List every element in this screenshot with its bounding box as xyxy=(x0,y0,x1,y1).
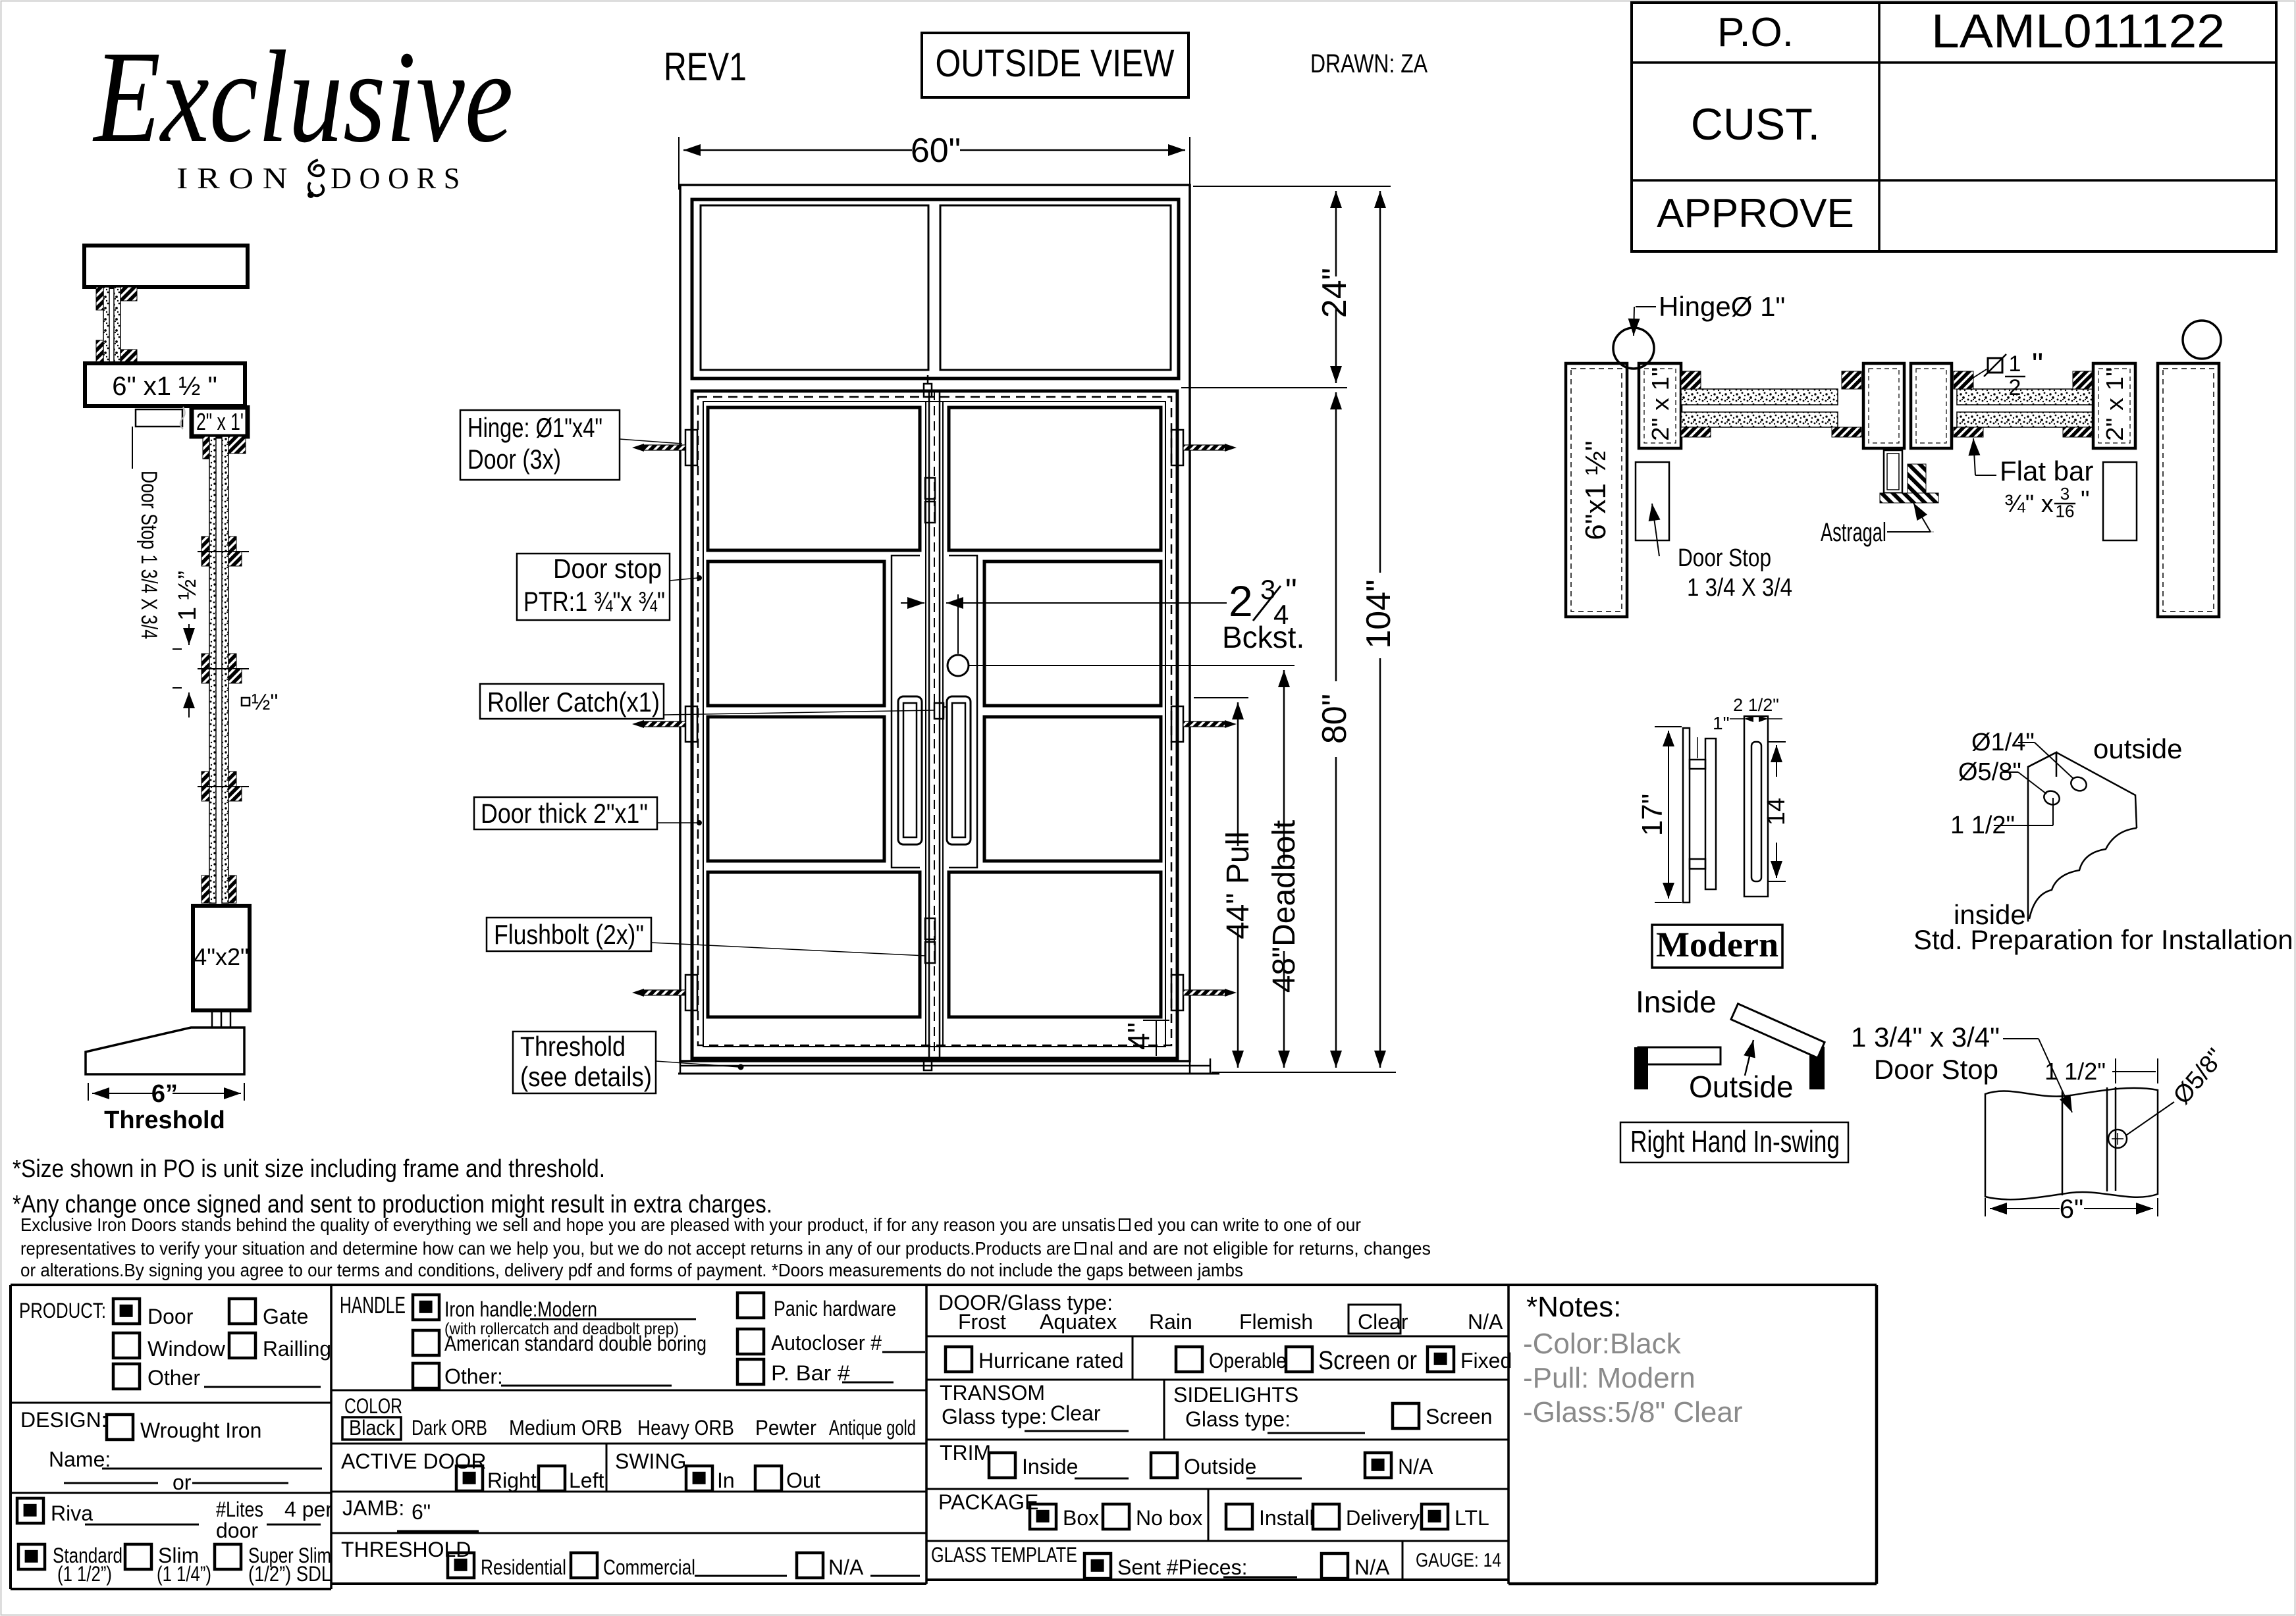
svg-text:3: 3 xyxy=(2060,484,2069,504)
svg-text:Delivery: Delivery xyxy=(1346,1506,1420,1530)
svg-text:Hinge: Ø1"x4": Hinge: Ø1"x4" xyxy=(467,412,602,443)
svg-text:APPROVE: APPROVE xyxy=(1657,191,1854,236)
svg-text:Clear: Clear xyxy=(1358,1310,1408,1334)
svg-text:Operable: Operable xyxy=(1209,1349,1287,1372)
svg-text:CUST.: CUST. xyxy=(1691,99,1820,149)
svg-text:Autocloser #: Autocloser # xyxy=(771,1331,882,1355)
svg-text:Clear: Clear xyxy=(1050,1401,1101,1425)
svg-text:6": 6" xyxy=(412,1500,431,1524)
svg-text:P. Bar #: P. Bar # xyxy=(771,1361,850,1385)
svg-text:-Glass:5/8" Clear: -Glass:5/8" Clear xyxy=(1523,1396,1743,1428)
svg-text:GLASS TEMPLATE: GLASS TEMPLATE xyxy=(931,1543,1077,1567)
svg-text:LTL: LTL xyxy=(1455,1506,1489,1530)
svg-text:Black: Black xyxy=(349,1416,396,1440)
svg-text:Name:: Name: xyxy=(49,1447,111,1471)
svg-text:1 ½”: 1 ½” xyxy=(174,571,201,621)
svg-text:JAMB:: JAMB: xyxy=(342,1496,404,1520)
svg-text:*Notes:: *Notes: xyxy=(1526,1291,1621,1323)
svg-text:104": 104" xyxy=(1360,579,1398,648)
svg-text:Screen or: Screen or xyxy=(1318,1346,1417,1375)
svg-text:2 1/2": 2 1/2" xyxy=(1733,695,1779,715)
svg-text:N/A: N/A xyxy=(828,1555,864,1579)
svg-text:Inside: Inside xyxy=(1636,985,1717,1019)
svg-text:N/A: N/A xyxy=(1468,1310,1503,1334)
svg-text:GAUGE: 14: GAUGE: 14 xyxy=(1416,1550,1501,1571)
svg-text:Install: Install xyxy=(1259,1506,1314,1530)
svg-text:Outside: Outside xyxy=(1689,1070,1794,1104)
svg-text:SWING: SWING xyxy=(615,1449,686,1473)
svg-text:4 per: 4 per xyxy=(284,1498,333,1521)
svg-text:Commercial: Commercial xyxy=(603,1555,695,1579)
svg-text:PRODUCT:: PRODUCT: xyxy=(19,1299,106,1322)
svg-text:Right Hand In-swing: Right Hand In-swing xyxy=(1630,1124,1840,1159)
svg-text:60": 60" xyxy=(911,132,961,170)
svg-text:Screen: Screen xyxy=(1426,1405,1492,1428)
svg-text:THRESHOLD: THRESHOLD xyxy=(341,1538,471,1561)
svg-text:-Color:Black: -Color:Black xyxy=(1523,1328,1682,1360)
svg-text:Threshold: Threshold xyxy=(104,1107,225,1134)
svg-text:Flemish: Flemish xyxy=(1239,1310,1313,1334)
svg-text:Roller Catch(x1): Roller Catch(x1) xyxy=(487,687,660,717)
svg-text:representatives to verify your: representatives to verify your situation… xyxy=(20,1238,1071,1259)
svg-text:Flushbolt (2x)": Flushbolt (2x)" xyxy=(494,919,644,950)
svg-text:Hurricane rated: Hurricane rated xyxy=(978,1349,1124,1372)
svg-text:2" x 1": 2" x 1" xyxy=(2101,367,2128,441)
svg-text:DRAWN: ZA: DRAWN: ZA xyxy=(1310,49,1428,78)
svg-text:HANDLE: HANDLE xyxy=(340,1291,406,1318)
svg-text:PTR:1 ¾"x ¾": PTR:1 ¾"x ¾" xyxy=(523,586,665,617)
svg-text:or: or xyxy=(173,1471,192,1494)
svg-text:": " xyxy=(2081,486,2090,514)
svg-text:1: 1 xyxy=(2009,352,2021,377)
svg-text:": " xyxy=(2032,348,2043,382)
svg-text:Dark ORB: Dark ORB xyxy=(412,1416,487,1440)
svg-text:Residential: Residential xyxy=(481,1555,566,1579)
svg-text:-Pull: Modern: -Pull: Modern xyxy=(1523,1362,1695,1394)
svg-text:American standard double borin: American standard double boring xyxy=(444,1332,707,1355)
svg-text:(see details): (see details) xyxy=(520,1061,652,1092)
svg-text:PACKAGE: PACKAGE xyxy=(938,1490,1038,1514)
svg-text:Flat bar: Flat bar xyxy=(2000,456,2093,486)
svg-text:Inside: Inside xyxy=(1022,1455,1078,1478)
svg-text:Medium ORB: Medium ORB xyxy=(509,1416,622,1440)
svg-text:Iron handle:Modern: Iron handle:Modern xyxy=(444,1297,597,1321)
svg-text:Bckst.: Bckst. xyxy=(1222,620,1304,654)
svg-text:2: 2 xyxy=(1229,577,1253,625)
svg-text:1 1/2": 1 1/2" xyxy=(2044,1058,2106,1085)
svg-text:Other: Other xyxy=(147,1366,200,1390)
svg-text:Riva: Riva xyxy=(51,1501,93,1525)
svg-text:IRON: IRON xyxy=(176,161,296,195)
svg-text:Frost: Frost xyxy=(958,1310,1006,1334)
svg-text:44" Pull: 44" Pull xyxy=(1221,831,1256,939)
svg-text:HingeØ 1": HingeØ 1" xyxy=(1659,291,1785,322)
svg-text:Wrought Iron: Wrought Iron xyxy=(140,1419,261,1442)
svg-text:Exclusive: Exclusive xyxy=(92,24,513,170)
svg-text:Door Stop 1 3/4 X 3/4: Door Stop 1 3/4 X 3/4 xyxy=(136,471,161,639)
svg-text:(1/2”) SDL: (1/2”) SDL xyxy=(248,1562,331,1586)
svg-text:COLOR: COLOR xyxy=(344,1394,402,1418)
svg-text:Railling: Railling xyxy=(263,1337,331,1361)
svg-text:In: In xyxy=(717,1469,735,1492)
svg-text:Out: Out xyxy=(786,1469,820,1492)
svg-text:DESIGN:: DESIGN: xyxy=(20,1408,107,1432)
svg-text:48"Deadbolt: 48"Deadbolt xyxy=(1267,820,1302,993)
svg-text:Right: Right xyxy=(487,1469,537,1492)
svg-text:Aquatex: Aquatex xyxy=(1040,1310,1117,1334)
svg-text:TRANSOM: TRANSOM xyxy=(940,1381,1045,1405)
svg-text:½": ½" xyxy=(252,690,278,715)
svg-text:2" x 1": 2" x 1" xyxy=(1647,367,1674,441)
svg-text:Door: Door xyxy=(147,1305,194,1328)
svg-text:Glass type:: Glass type: xyxy=(1185,1407,1291,1431)
svg-text:Fixed: Fixed xyxy=(1460,1349,1512,1372)
svg-text:17": 17" xyxy=(1636,794,1669,837)
svg-text:80": 80" xyxy=(1316,694,1354,744)
svg-text:Window: Window xyxy=(147,1337,226,1361)
svg-text:Antique gold: Antique gold xyxy=(829,1416,916,1440)
svg-text:Modern: Modern xyxy=(1656,925,1778,964)
svg-text:¾" x: ¾" x xyxy=(2004,490,2054,518)
svg-text:Sent #Pieces:: Sent #Pieces: xyxy=(1117,1555,1247,1579)
svg-text:1": 1" xyxy=(1713,713,1730,733)
svg-text:Door Stop: Door Stop xyxy=(1678,544,1771,572)
svg-text:Heavy ORB: Heavy ORB xyxy=(637,1416,734,1440)
svg-text:2" x 1': 2" x 1' xyxy=(196,408,244,435)
svg-text:": " xyxy=(1285,572,1297,609)
svg-text:Pewter: Pewter xyxy=(755,1416,816,1440)
svg-text:Rain: Rain xyxy=(1149,1310,1192,1334)
svg-text:2: 2 xyxy=(2009,375,2021,400)
svg-text:*Size shown in PO is unit size: *Size shown in PO is unit size including… xyxy=(13,1155,605,1183)
svg-text:1 3/4 X 3/4: 1 3/4 X 3/4 xyxy=(1687,574,1792,602)
svg-text:Door (3x): Door (3x) xyxy=(467,444,561,475)
svg-text:(1 1/4”): (1 1/4”) xyxy=(157,1562,211,1586)
svg-text:#Lites: #Lites xyxy=(216,1498,263,1521)
svg-text:6" x1 ½ ": 6" x1 ½ " xyxy=(112,372,217,401)
svg-text:TRIM: TRIM xyxy=(940,1441,991,1465)
svg-text:Box: Box xyxy=(1063,1506,1099,1530)
svg-text:24": 24" xyxy=(1316,268,1354,318)
svg-text:N/A: N/A xyxy=(1354,1555,1390,1579)
svg-text:OUTSIDE VIEW: OUTSIDE VIEW xyxy=(936,42,1175,85)
svg-text:4"x2": 4"x2" xyxy=(194,943,249,970)
svg-text:Std. Preparation for Installat: Std. Preparation for Installation xyxy=(1913,924,2293,955)
svg-text:or alterations.By signing you: or alterations.By signing you agree to o… xyxy=(20,1260,1243,1280)
svg-text:outside: outside xyxy=(2093,733,2182,764)
svg-text:door: door xyxy=(216,1519,258,1542)
svg-text:P.O.: P.O. xyxy=(1717,10,1794,55)
svg-text:Left: Left xyxy=(569,1469,604,1492)
svg-text:REV1: REV1 xyxy=(664,45,747,89)
svg-text:N/A: N/A xyxy=(1398,1455,1433,1478)
svg-text:6": 6" xyxy=(2060,1195,2083,1224)
svg-text:Exclusive Iron Doors stands be: Exclusive Iron Doors stands behind the q… xyxy=(20,1214,1115,1235)
svg-text:Other:: Other: xyxy=(444,1365,503,1388)
svg-text:1 3/4" x 3/4": 1 3/4" x 3/4" xyxy=(1851,1022,2000,1053)
svg-text:4": 4" xyxy=(1121,1022,1156,1050)
svg-text:Outside: Outside xyxy=(1184,1455,1256,1478)
svg-text:6”: 6” xyxy=(151,1080,178,1108)
svg-text:(1 1/2”): (1 1/2”) xyxy=(57,1562,112,1586)
svg-text:Gate: Gate xyxy=(263,1305,308,1328)
svg-text:16: 16 xyxy=(2056,502,2075,521)
svg-text:Glass type:: Glass type: xyxy=(942,1405,1047,1428)
svg-text:Door stop: Door stop xyxy=(553,553,662,584)
svg-text:Panic hardware: Panic hardware xyxy=(774,1297,896,1320)
svg-text:ACTIVE DOOR: ACTIVE DOOR xyxy=(341,1449,486,1473)
svg-text:SIDELIGHTS: SIDELIGHTS xyxy=(1173,1383,1298,1407)
svg-text:ed you can write to one of our: ed you can write to one of our xyxy=(1134,1214,1361,1235)
svg-text:No box: No box xyxy=(1136,1506,1202,1530)
svg-text:Threshold: Threshold xyxy=(520,1031,626,1062)
svg-text:Door Stop: Door Stop xyxy=(1874,1054,1998,1085)
svg-text:DOORS: DOORS xyxy=(331,161,467,195)
svg-text:6"x1 ½": 6"x1 ½" xyxy=(1580,440,1612,540)
svg-text:14: 14 xyxy=(1763,798,1790,825)
svg-text:Door thick 2"x1": Door thick 2"x1" xyxy=(481,798,648,829)
svg-text:nal and are not eligible for r: nal and are not eligible for returns, ch… xyxy=(1090,1238,1431,1259)
svg-text:Astragal: Astragal xyxy=(1821,518,1886,547)
svg-text:LAML011122: LAML011122 xyxy=(1931,5,2225,58)
